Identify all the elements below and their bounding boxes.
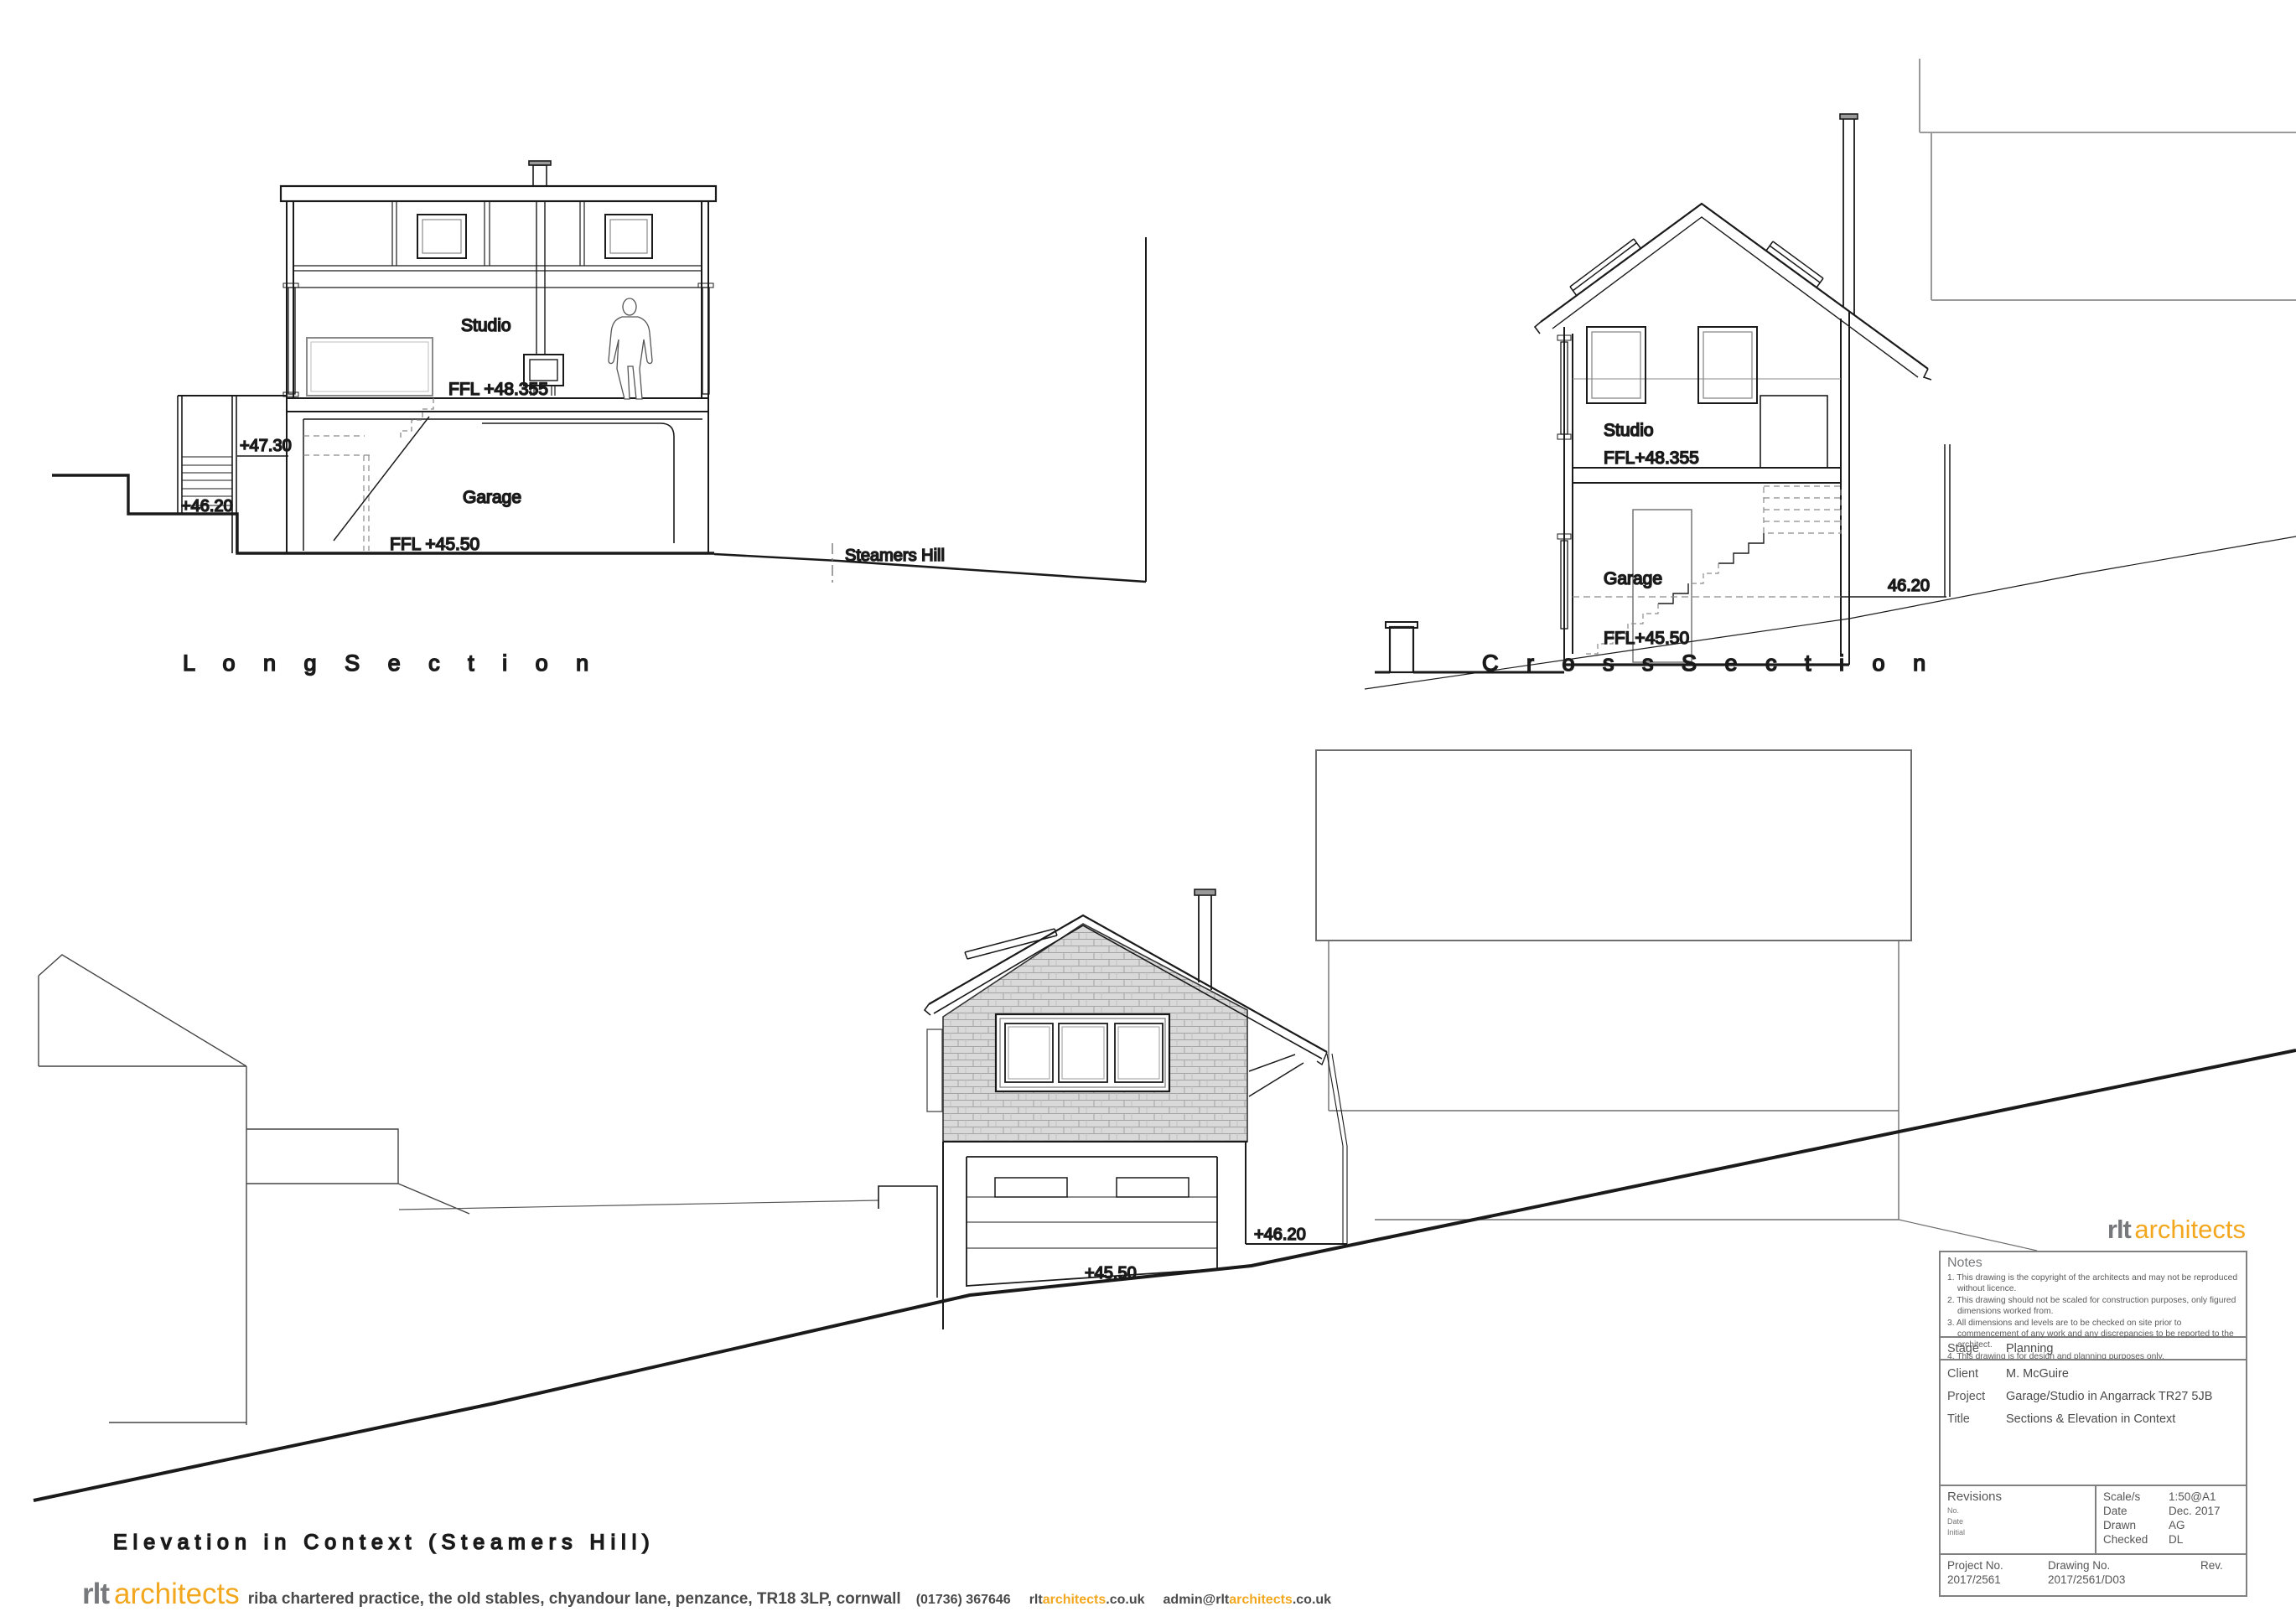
elevation-level-4620-label: +46.20 [1254, 1226, 1306, 1244]
note-item: 2. This drawing should not be scaled for… [1947, 1295, 2239, 1318]
project-value: Garage/Studio in Angarrack TR27 5JB [2006, 1390, 2212, 1403]
cross-section-drawing: Studio FFL+48.355 Garage FFL+45.50 46.20… [1365, 59, 2296, 689]
long-section-title: L o n g S e c t i o n [183, 650, 599, 676]
external-stair [178, 396, 287, 553]
elevation-level-4550-label: +45.50 [1085, 1264, 1137, 1283]
footer-email-link[interactable]: admin@rltarchitects.co.uk [1164, 1593, 1332, 1608]
revisions-no-label: No. [1947, 1506, 2088, 1515]
title-label: Title [1947, 1412, 2006, 1426]
long-section-level-4620-label: +46.20 [181, 497, 233, 516]
cross-section-garage-label: Garage [1604, 569, 1662, 588]
logo-architects-text: architects [2134, 1215, 2246, 1244]
long-section-drawing: Studio FFL +48.355 Garage FFL +45.50 +47… [52, 161, 1146, 676]
right-neighbour-building [1316, 750, 2037, 1251]
client-value: M. McGuire [2006, 1367, 2069, 1381]
drawn-value: AG [2169, 1518, 2185, 1532]
note-item: 1. This drawing is the copyright of the … [1947, 1272, 2239, 1295]
footer-logo-rlt: rlt [82, 1578, 109, 1611]
notes-section: Notes 1. This drawing is the copyright o… [1941, 1252, 2246, 1338]
numbers-section: Project No. 2017/2561 Drawing No. 2017/2… [1941, 1555, 2246, 1595]
rev-label: Rev. [2200, 1558, 2239, 1573]
logo-rlt-text: rlt [2107, 1215, 2131, 1244]
date-value: Dec. 2017 [2169, 1504, 2221, 1518]
stage-value: Planning [2006, 1342, 2053, 1355]
revisions-date-label: Date [1947, 1517, 2088, 1526]
stage-row: StagePlanning [1941, 1338, 2246, 1360]
cross-section-ffl-upper-label: FFL+48.355 [1604, 448, 1699, 468]
long-section-garage-label: Garage [463, 488, 521, 507]
steamers-hill-label: Steamers Hill [845, 547, 945, 565]
notes-heading: Notes [1947, 1256, 2239, 1271]
left-neighbour-building [39, 955, 469, 1425]
scale-value: 1:50@A1 [2169, 1490, 2216, 1504]
drawing-no-label: Drawing No. [2048, 1558, 2200, 1573]
drawing-sheet: Studio FFL +48.355 Garage FFL +45.50 +47… [0, 0, 2296, 1622]
date-label: Date [2103, 1504, 2169, 1518]
checked-value: DL [2169, 1532, 2183, 1547]
footer-website-link[interactable]: rltarchitects.co.uk [1029, 1593, 1145, 1608]
cross-section-ffl-lower-label: FFL+45.50 [1604, 629, 1689, 648]
footer-logo-architects: architects [114, 1578, 240, 1611]
elevation-chimney-icon [1195, 889, 1215, 990]
project-info-section: ClientM. McGuire ProjectGarage/Studio in… [1941, 1360, 2246, 1485]
title-block: rlt architects Notes 1. This drawing is … [1939, 1217, 2247, 1597]
project-no-label: Project No. [1947, 1558, 2048, 1573]
long-section-ffl-lower-label: FFL +45.50 [390, 535, 479, 554]
cross-section-title: C r o s s S e c t i o n [1482, 650, 1936, 676]
drawn-label: Drawn [2103, 1518, 2169, 1532]
revisions-heading: Revisions [1947, 1490, 2088, 1504]
client-label: Client [1947, 1367, 2006, 1381]
footer-practice: riba chartered practice [248, 1590, 420, 1609]
scale-label: Scale/s [2103, 1490, 2169, 1504]
stage-label: Stage [1947, 1342, 2006, 1355]
footer: rlt architects riba chartered practice ,… [82, 1578, 1331, 1611]
long-section-level-4730-label: +47.30 [240, 437, 292, 455]
project-label: Project [1947, 1390, 2006, 1403]
ground-pillar [1386, 622, 1418, 672]
checked-label: Checked [2103, 1532, 2169, 1547]
title-block-logo: rlt architects [1939, 1217, 2247, 1247]
revisions-initial-label: Initial [1947, 1528, 2088, 1536]
long-section-ffl-upper-label: FFL +48.355 [448, 380, 548, 399]
chimney-icon [1840, 114, 1858, 315]
revisions-section: Revisions No. Date Initial Scale/s1:50@A… [1941, 1485, 2246, 1555]
studio-window-band [996, 1014, 1169, 1091]
title-value: Sections & Elevation in Context [2006, 1412, 2175, 1426]
cross-section-level-4620-label: 46.20 [1888, 577, 1930, 595]
person-figure-icon [609, 298, 652, 399]
footer-address: , the old stables, chyandour lane, penza… [420, 1590, 901, 1609]
drawing-no-value: 2017/2561/D03 [2048, 1573, 2200, 1587]
cross-section-studio-label: Studio [1604, 421, 1654, 440]
long-section-studio-label: Studio [461, 316, 511, 335]
project-no-value: 2017/2561 [1947, 1573, 2048, 1587]
footer-phone: (01736) 367646 [916, 1593, 1011, 1608]
elevation-title: Elevation in Context (Steamers Hill) [113, 1531, 656, 1554]
